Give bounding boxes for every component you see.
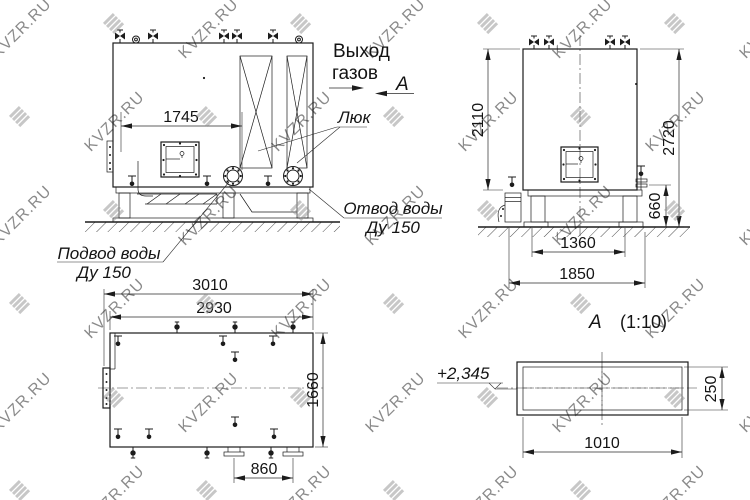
boiler-technical-drawing: KVZR.RU KVZR.RU	[0, 0, 750, 500]
watermark-layer	[0, 0, 750, 500]
technical-drawing-page: KVZR.RU KVZR.RU	[0, 0, 750, 500]
